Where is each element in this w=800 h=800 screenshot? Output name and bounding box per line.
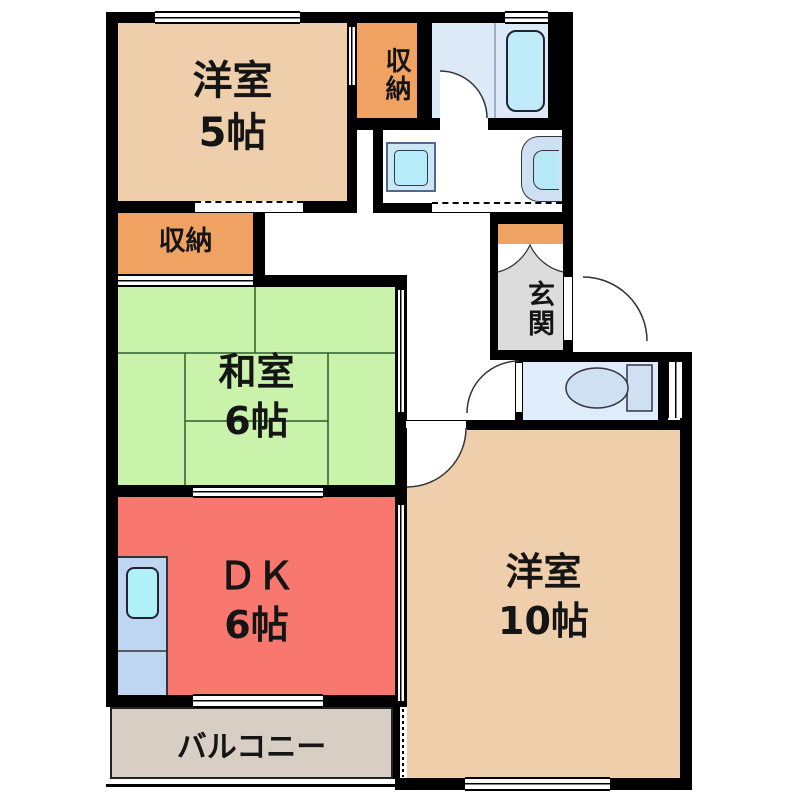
label-closet-left: 収納 — [118, 224, 253, 259]
sliding-door-western5-closet — [347, 27, 357, 85]
window — [465, 777, 610, 791]
wall-segment — [417, 20, 432, 130]
room-toilet — [523, 362, 658, 420]
wall-segment — [106, 12, 118, 707]
wall-segment — [490, 212, 573, 224]
sliding-door-dk-western10 — [396, 505, 406, 701]
label-japanese6: 和室 6帖 — [118, 348, 395, 447]
wall-segment — [373, 130, 383, 213]
wall-segment — [303, 201, 347, 213]
wall-segment — [383, 203, 432, 213]
wall-segment — [467, 420, 683, 430]
room-size: 6帖 — [118, 397, 395, 446]
sliding-door-western5 — [195, 201, 303, 213]
window — [155, 11, 300, 24]
room-name: ＤＫ — [118, 552, 395, 601]
label-entrance: 玄関 — [506, 266, 556, 352]
room-size: 6帖 — [118, 601, 395, 650]
wall-segment — [548, 12, 573, 130]
floor-plan: 洋室 5帖 収納 収納 和室 6帖 玄関 ＤＫ 6帖 洋室 10帖 バルコニー — [0, 0, 800, 800]
entrance-door-leaf — [563, 276, 573, 341]
wall-segment — [562, 130, 573, 212]
wash-basin-bowl — [533, 150, 559, 190]
wall-segment — [253, 275, 407, 287]
wall-segment — [393, 707, 400, 779]
room-size: 5帖 — [118, 107, 347, 159]
washing-machine-drum — [394, 150, 428, 186]
window — [193, 694, 323, 708]
room-name: 和室 — [118, 348, 395, 397]
room-name: 洋室 — [118, 55, 347, 107]
wall-segment — [563, 212, 573, 276]
wall-segment — [118, 201, 195, 213]
label-closet-top: 収納 — [360, 30, 412, 120]
window — [667, 362, 684, 418]
sliding-door-washroom — [432, 202, 562, 213]
entrance-door-arc — [583, 277, 647, 341]
room-size: 10帖 — [407, 597, 680, 646]
wall-segment — [490, 212, 498, 360]
sliding-door-japanese-hall — [396, 290, 406, 412]
room-name: 洋室 — [407, 548, 680, 597]
window — [505, 11, 548, 24]
toilet-door-leaf — [515, 362, 523, 413]
label-western10: 洋室 10帖 — [407, 548, 680, 647]
label-balcony: バルコニー — [110, 728, 393, 767]
sliding-door-closet-left — [118, 274, 253, 287]
sliding-door-japanese-dk — [193, 486, 323, 498]
outline-under-balcony — [106, 784, 396, 787]
wall-segment — [253, 213, 265, 277]
western10-door-leaf — [405, 420, 467, 429]
wall-segment — [432, 118, 440, 130]
bathtub — [506, 30, 545, 112]
toilet-door-arc — [467, 361, 519, 413]
label-western5: 洋室 5帖 — [118, 55, 347, 159]
wall-segment — [488, 118, 548, 130]
label-dk: ＤＫ 6帖 — [118, 552, 395, 651]
